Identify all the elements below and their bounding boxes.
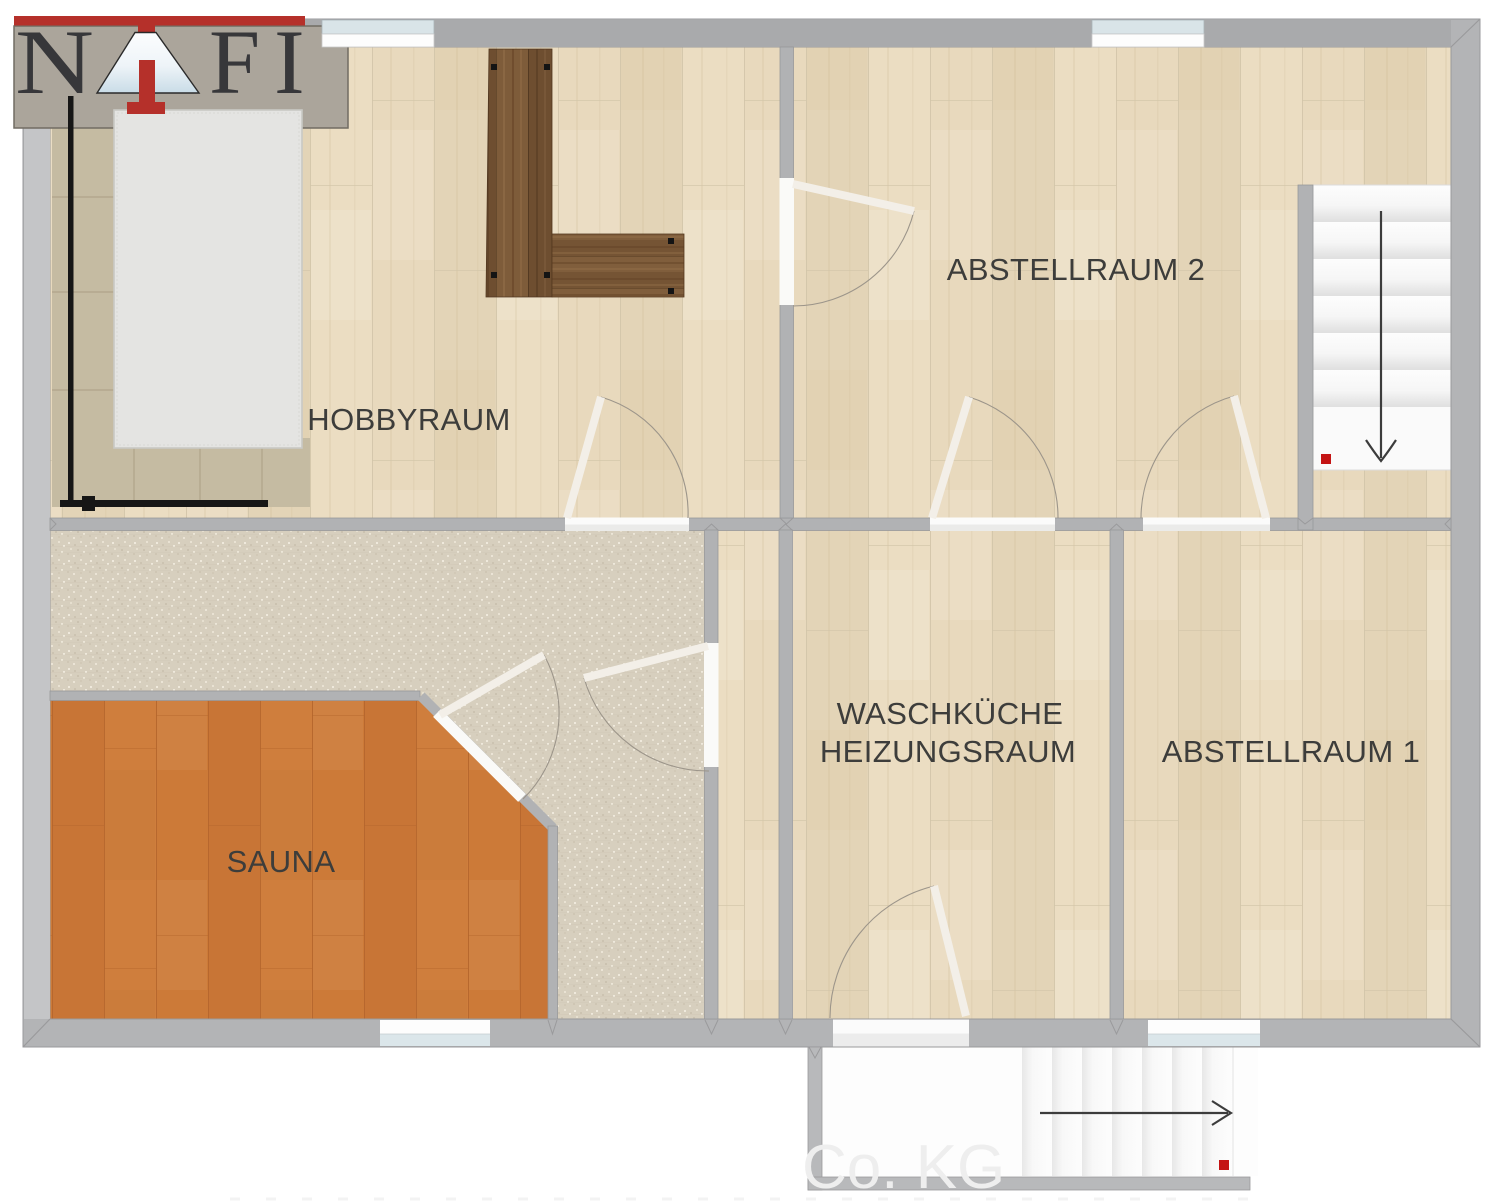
svg-text:Co. KG: Co. KG xyxy=(802,1133,1005,1202)
svg-text:ABSTELLRAUM 1: ABSTELLRAUM 1 xyxy=(1162,734,1420,769)
svg-text:HOBBYRAUM: HOBBYRAUM xyxy=(307,402,510,437)
svg-text:HEIZUNGSRAUM: HEIZUNGSRAUM xyxy=(820,734,1076,769)
svg-text:F: F xyxy=(209,11,260,113)
svg-text:WASCHKÜCHE: WASCHKÜCHE xyxy=(837,696,1064,731)
svg-text:I: I xyxy=(274,11,305,113)
svg-text:ABSTELLRAUM 2: ABSTELLRAUM 2 xyxy=(947,252,1205,287)
svg-text:N: N xyxy=(15,11,94,113)
svg-text:SAUNA: SAUNA xyxy=(227,844,336,879)
